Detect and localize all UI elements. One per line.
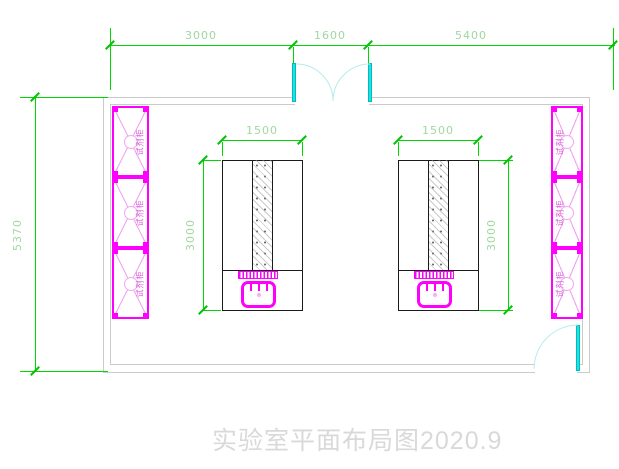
reagent-cabinet: 试剂柜 — [551, 106, 583, 177]
room-wall-inner — [110, 104, 583, 365]
cabinet-corner — [577, 107, 582, 112]
dim-line-bench-left-depth — [203, 160, 204, 310]
cabinet-corner — [577, 249, 582, 254]
bench-spine-hatch — [428, 160, 449, 271]
cabinet-corner — [113, 313, 118, 318]
reagent-cabinet: 试剂柜 — [112, 106, 149, 177]
dim-ext — [222, 142, 223, 156]
dim-text-bench-right-depth: 3000 — [485, 204, 499, 266]
door-leaf-top-left — [292, 63, 296, 102]
dim-ext — [203, 160, 221, 161]
cabinet-corner — [552, 107, 557, 112]
door-opening-top — [295, 96, 369, 106]
sink-tick — [442, 284, 444, 291]
dim-text-3000-top: 3000 — [170, 29, 232, 43]
dim-ext-top-mid1 — [293, 47, 294, 63]
cabinet-label: 试剂柜 — [134, 199, 145, 226]
cabinet-corner — [552, 242, 557, 247]
door-leaf-bottom-right — [576, 325, 580, 371]
dim-ext — [398, 142, 399, 156]
dim-text-bench-left-width: 1500 — [232, 124, 292, 138]
dim-line-bench-right-depth — [508, 160, 509, 310]
cabinet-corner — [552, 178, 557, 183]
cabinet-corner — [143, 178, 148, 183]
dim-text-1600-top: 1600 — [299, 29, 361, 43]
dim-line-left — [35, 97, 36, 372]
cabinet-corner — [143, 313, 148, 318]
dim-text-bench-left-depth: 3000 — [184, 204, 198, 266]
dim-ext-top-right — [613, 28, 614, 90]
door-leaf-top-right — [368, 63, 372, 102]
sink-tick — [258, 284, 260, 291]
dim-ext — [478, 142, 479, 156]
cabinet-corner — [577, 178, 582, 183]
cabinet-corner — [113, 107, 118, 112]
dim-line-bench-left-width — [222, 140, 303, 141]
cabinet-corner — [113, 242, 118, 247]
cabinet-corner — [143, 249, 148, 254]
sink-tick — [434, 284, 436, 291]
cabinet-corner — [577, 171, 582, 176]
sink-tick — [426, 284, 428, 291]
cabinet-label: 试剂柜 — [134, 270, 145, 297]
sink-tick — [266, 284, 268, 291]
dim-text-5400-top: 5400 — [440, 29, 502, 43]
floor-plan-canvas: 3000 1600 5400 5370 试剂柜 试剂柜 试剂柜 试剂柜 — [0, 0, 619, 469]
dim-ext-top-mid2 — [368, 47, 369, 63]
dim-line-bench-right-width — [398, 140, 479, 141]
sink-symbol — [417, 281, 452, 308]
cabinet-label: 试剂柜 — [555, 128, 566, 155]
cabinet-corner — [577, 242, 582, 247]
cabinet-corner — [113, 178, 118, 183]
door-opening-bottom — [535, 363, 577, 374]
reagent-cabinet: 试剂柜 — [551, 177, 583, 248]
cabinet-corner — [552, 171, 557, 176]
dim-ext-top-left — [110, 28, 111, 90]
cabinet-corner — [143, 242, 148, 247]
dim-text-5370-left: 5370 — [11, 204, 25, 266]
dim-line-top — [110, 45, 615, 46]
cabinet-label: 试剂柜 — [555, 199, 566, 226]
sink-symbol — [241, 281, 276, 308]
sink-drain — [257, 293, 261, 297]
cabinet-corner — [143, 107, 148, 112]
reagent-cabinet: 试剂柜 — [112, 248, 149, 319]
sink-drain — [433, 293, 437, 297]
sink-tick — [250, 284, 252, 291]
cabinet-corner — [113, 171, 118, 176]
reagent-cabinet: 试剂柜 — [112, 177, 149, 248]
dim-ext — [203, 310, 221, 311]
cabinet-corner — [552, 249, 557, 254]
sink-grille — [238, 271, 278, 279]
cabinet-corner — [113, 249, 118, 254]
cabinet-corner — [552, 313, 557, 318]
cabinet-corner — [143, 171, 148, 176]
reagent-cabinet: 试剂柜 — [551, 248, 583, 319]
sink-grille — [414, 271, 454, 279]
bench-spine-hatch — [252, 160, 273, 271]
dim-ext — [302, 142, 303, 156]
dim-text-bench-right-width: 1500 — [408, 124, 468, 138]
cabinet-corner — [577, 313, 582, 318]
cabinet-label: 试剂柜 — [555, 270, 566, 297]
drawing-title: 实验室平面布局图2020.9 — [212, 421, 482, 457]
cabinet-label: 试剂柜 — [134, 128, 145, 155]
